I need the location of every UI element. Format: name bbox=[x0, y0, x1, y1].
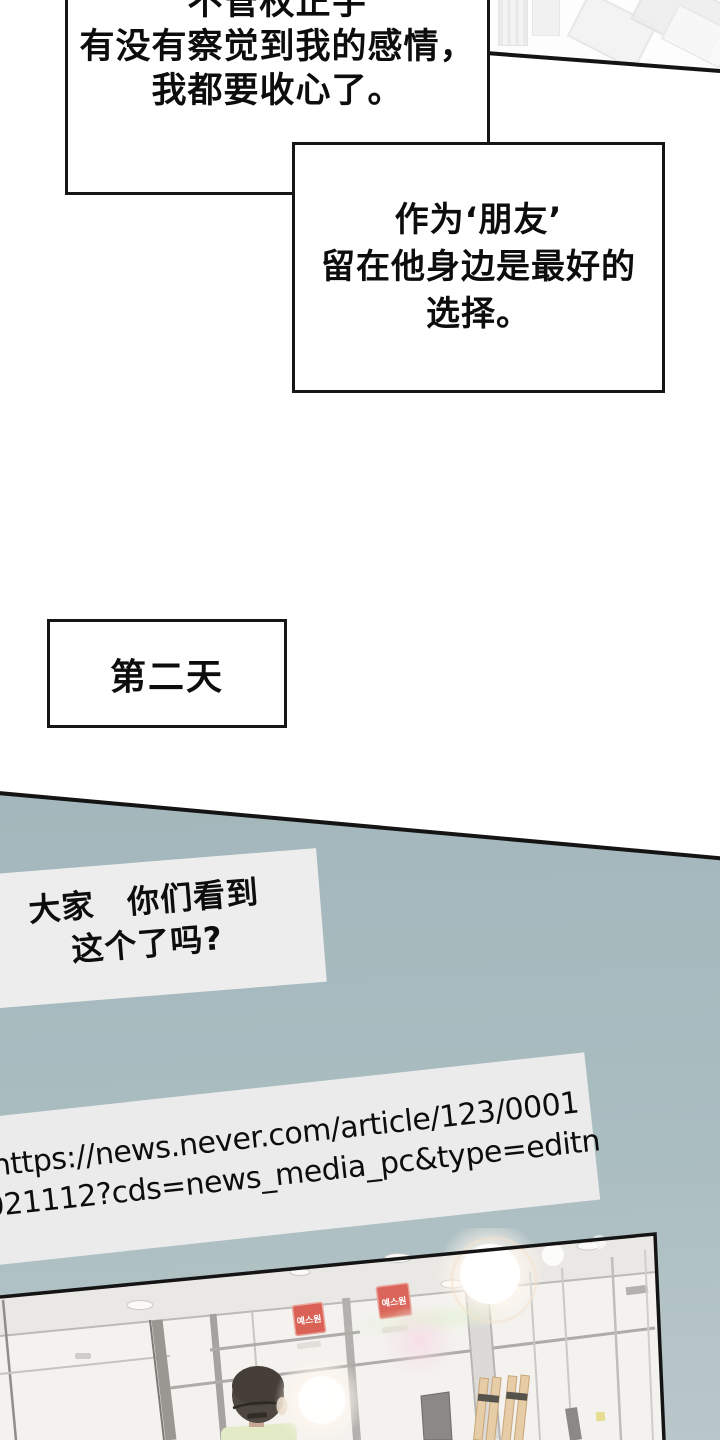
storefront-scene: 예스원 예스원 bbox=[0, 1228, 720, 1440]
caption-text: 第二天 bbox=[110, 648, 224, 700]
speech-line: 我都要收心了。 bbox=[68, 69, 487, 113]
speech-line: 留在他身边是最好的 bbox=[295, 244, 662, 291]
building-shape bbox=[532, 0, 560, 36]
speech-line: 作为‘朋友’ bbox=[295, 197, 662, 244]
interior-door bbox=[421, 1392, 452, 1440]
interior-door-dark bbox=[571, 1408, 576, 1440]
yellow-sticker bbox=[596, 1411, 606, 1421]
speech-line: 选择。 bbox=[295, 291, 662, 338]
scene-caption-box: 第二天 bbox=[47, 619, 287, 728]
red-sign: 예스원 bbox=[292, 1302, 325, 1335]
webtoon-page: 不管权正宇 有没有察觉到我的感情， 我都要收心了。 作为‘朋友’ 留在他身边是最… bbox=[0, 0, 720, 1440]
speech-line: 有没有察觉到我的感情， bbox=[68, 25, 487, 69]
speech-line: 不管权正宇 bbox=[68, 0, 487, 25]
door-closer bbox=[75, 1353, 91, 1359]
building-shape bbox=[498, 0, 528, 46]
speech-bubble-friend: 作为‘朋友’ 留在他身边是最好的 选择。 bbox=[292, 142, 665, 393]
storefront-panel: 예스원 예스원 bbox=[0, 1228, 720, 1440]
